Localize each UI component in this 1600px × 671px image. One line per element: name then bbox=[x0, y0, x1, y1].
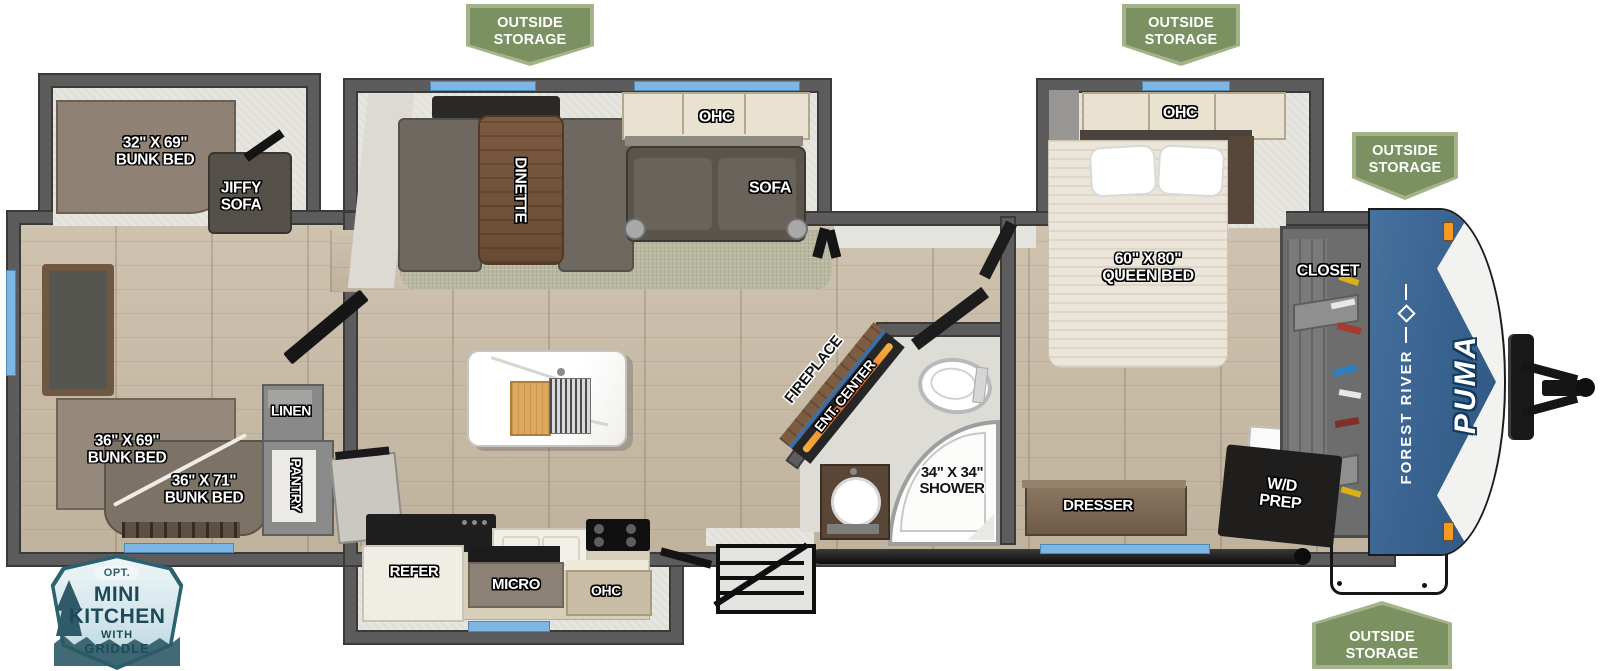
microwave-top bbox=[468, 546, 560, 562]
vanity-base bbox=[827, 524, 879, 534]
label-micro: MICRO bbox=[492, 577, 540, 593]
ohc-underside bbox=[625, 136, 803, 146]
outside-storage-badge-bottom: OUTSIDE STORAGE bbox=[1312, 601, 1452, 669]
label-sofa: SOFA bbox=[749, 179, 791, 196]
outside-storage-badge-right: OUTSIDE STORAGE bbox=[1352, 132, 1458, 200]
clothes-item bbox=[1333, 364, 1358, 377]
clothes-item bbox=[1339, 389, 1362, 399]
kitchen-island bbox=[467, 350, 627, 447]
bath-sink bbox=[831, 477, 881, 527]
outside-storage-badge-top-left: OUTSIDE STORAGE bbox=[466, 4, 594, 66]
label-bunk-32x69: 32" X 69" BUNK BED bbox=[116, 135, 195, 168]
cutting-board bbox=[510, 381, 551, 436]
label-jiffy-sofa: JIFFY SOFA bbox=[221, 180, 262, 213]
ohc-divider bbox=[1214, 94, 1216, 134]
label-wd-prep: W/D PREP bbox=[1258, 475, 1303, 514]
faucet-icon bbox=[557, 368, 565, 376]
bed-side-cabinet bbox=[1228, 136, 1254, 224]
kitchen-window-accent bbox=[468, 621, 550, 632]
ohc-divider bbox=[682, 94, 684, 134]
dresser-top bbox=[1022, 480, 1186, 488]
badge-with: WITH bbox=[101, 629, 133, 641]
front-cap-graphic bbox=[1370, 210, 1504, 554]
label-bunk-36x71: 36" X 71" BUNK BED bbox=[165, 473, 244, 506]
clothes-item bbox=[1337, 322, 1362, 335]
kitchen-ohc-top bbox=[566, 560, 648, 570]
outside-storage-label: OUTSIDE STORAGE bbox=[1369, 143, 1442, 176]
toilet-seat bbox=[928, 365, 978, 402]
bolt bbox=[1337, 581, 1342, 586]
burner bbox=[626, 524, 636, 534]
forest-river-wordmark: FOREST RIVER bbox=[1396, 269, 1416, 499]
sink-cover-grate bbox=[549, 378, 591, 434]
knob bbox=[482, 520, 487, 525]
bedroom-slide-window-accent bbox=[1142, 81, 1230, 91]
outside-storage-label: OUTSIDE STORAGE bbox=[494, 15, 567, 48]
dinette-window-accent bbox=[430, 81, 536, 91]
mini-kitchen-badge: OPT. MINI KITCHEN WITH GRIDDLE bbox=[48, 552, 186, 670]
burner bbox=[594, 537, 604, 547]
floorplan-canvas: OUTSIDE STORAGE OUTSIDE STORAGE OUTSIDE … bbox=[0, 0, 1600, 671]
burner bbox=[626, 537, 636, 547]
label-closet: CLOSET bbox=[1297, 262, 1360, 279]
label-shower: 34" X 34" SHOWER bbox=[919, 465, 984, 497]
wordmark-rule bbox=[1405, 284, 1407, 300]
sofa-armrest bbox=[624, 218, 646, 240]
bedroom-window-accent bbox=[1040, 544, 1210, 554]
label-pantry: PANTRY bbox=[288, 458, 303, 512]
outside-storage-badge-top-right: OUTSIDE STORAGE bbox=[1122, 4, 1240, 66]
clothes-item bbox=[1341, 486, 1362, 497]
entry-steps bbox=[716, 544, 816, 614]
label-kitchen-ohc: OHC bbox=[591, 583, 621, 598]
knob bbox=[462, 520, 467, 525]
bath-faucet bbox=[850, 468, 857, 475]
badge-mini: MINI bbox=[94, 583, 140, 607]
label-refer: REFER bbox=[390, 564, 439, 580]
badge-kitchen: KITCHEN bbox=[69, 605, 166, 629]
awning-bar-endcap bbox=[1294, 548, 1311, 565]
knob bbox=[472, 520, 477, 525]
dinette-bench-left bbox=[398, 118, 482, 272]
label-bedroom-ohc: OHC bbox=[1163, 104, 1197, 121]
hitch-ball-icon bbox=[1576, 378, 1595, 397]
label-dinette: DINETTE bbox=[511, 157, 528, 223]
label-bunk-36x69: 36" X 69" BUNK BED bbox=[88, 433, 167, 466]
refrigerator bbox=[362, 545, 464, 622]
dinette-bench-right bbox=[558, 118, 634, 272]
outside-storage-label: OUTSIDE STORAGE bbox=[1145, 15, 1218, 48]
range-cooktop bbox=[586, 519, 650, 551]
toilet-tank bbox=[972, 366, 988, 403]
rear-side-window-accent bbox=[6, 270, 16, 376]
label-sofa-ohc: OHC bbox=[699, 108, 733, 125]
outside-storage-label: OUTSIDE STORAGE bbox=[1346, 629, 1419, 662]
sofa-cushion bbox=[634, 158, 712, 230]
rear-window bbox=[42, 264, 114, 396]
label-linen: LINEN bbox=[271, 403, 311, 418]
label-queen-bed: 60" X 80" QUEEN BED bbox=[1102, 251, 1194, 286]
label-dresser: DRESSER bbox=[1063, 498, 1133, 514]
step-tread bbox=[720, 561, 804, 565]
burner bbox=[594, 524, 604, 534]
badge-griddle: GRIDDLE bbox=[84, 641, 150, 656]
sofa-window-accent bbox=[634, 81, 800, 91]
hitch-crossmember bbox=[1508, 334, 1534, 440]
clearance-light bbox=[1443, 222, 1454, 241]
ohc-divider bbox=[1148, 94, 1150, 134]
clearance-light bbox=[1443, 522, 1454, 541]
forest-river-text: FOREST RIVER bbox=[1398, 350, 1415, 485]
clothes-item bbox=[1335, 417, 1360, 428]
step-rail bbox=[713, 543, 809, 608]
bath-vanity bbox=[820, 464, 890, 540]
ohc-divider bbox=[744, 94, 746, 134]
bath-bedroom-wall bbox=[1002, 218, 1014, 543]
bolt bbox=[1422, 583, 1427, 588]
pillow bbox=[1089, 144, 1158, 197]
bunk-step-bench bbox=[122, 522, 240, 538]
badge-opt-pill: OPT. bbox=[95, 566, 139, 580]
front-cap: FOREST RIVER PUMA bbox=[1368, 208, 1506, 556]
puma-logo-text: PUMA bbox=[1449, 334, 1483, 434]
pillow bbox=[1157, 144, 1226, 197]
sofa-armrest bbox=[786, 218, 808, 240]
fr-diamond-logo-icon bbox=[1397, 304, 1415, 322]
wordmark-rule bbox=[1405, 327, 1407, 343]
